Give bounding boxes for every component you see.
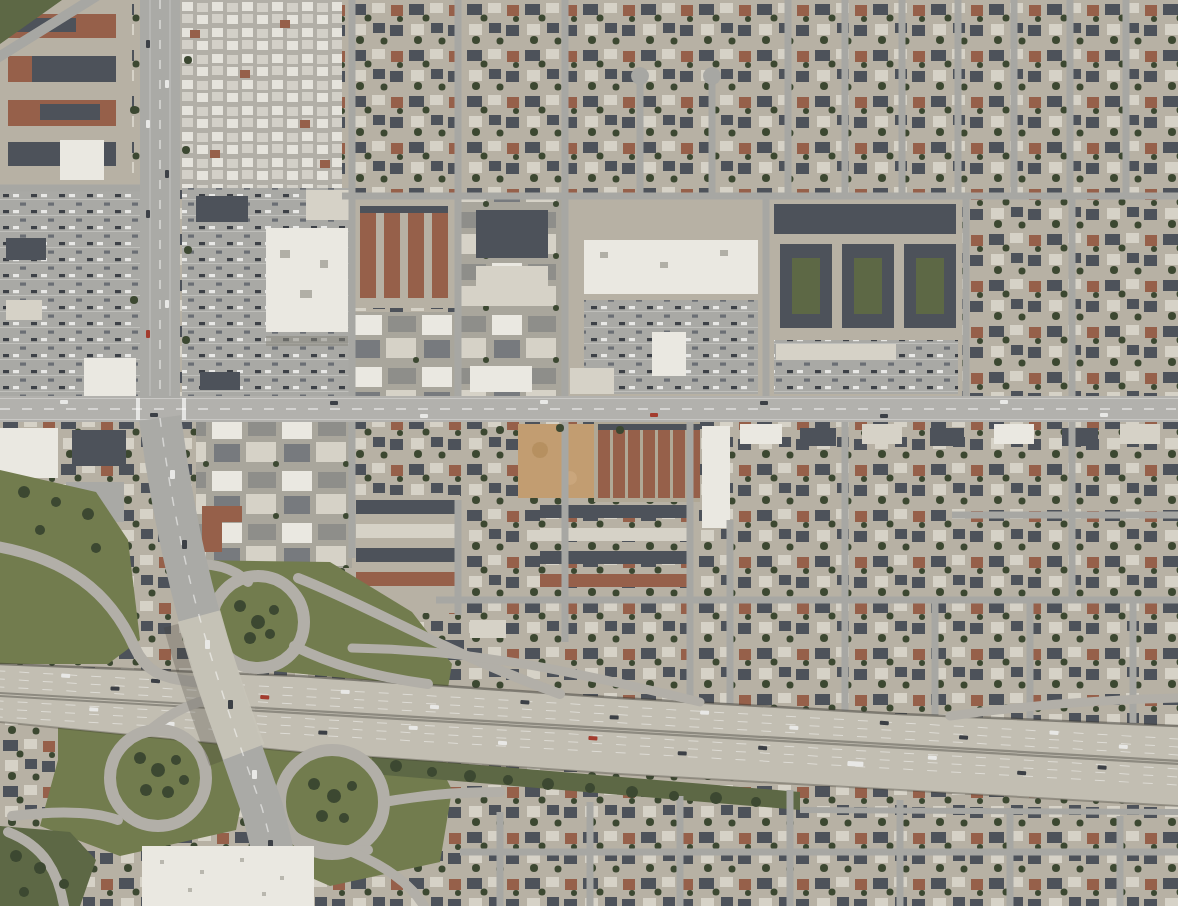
red-roof-apartments (354, 198, 456, 396)
mobile-home-park (172, 0, 342, 190)
topleft-apartments (0, 0, 132, 186)
courtyard-apartments (768, 198, 962, 396)
map-canvas (0, 0, 1178, 906)
commercial-parking-west (0, 188, 140, 396)
big-box-store (266, 228, 348, 346)
vacant-dirt-lot (518, 424, 594, 498)
white-building-ns (702, 426, 730, 528)
warehouse-building (142, 846, 314, 906)
industrial-block-mid (460, 198, 563, 396)
townhouse-complex (594, 420, 700, 502)
shopping-strip-building (584, 240, 758, 294)
shopping-strip-block (567, 198, 764, 396)
aerial-satellite-view (0, 0, 1178, 906)
boulevard-north (140, 0, 180, 398)
bigbox-block (182, 188, 352, 396)
